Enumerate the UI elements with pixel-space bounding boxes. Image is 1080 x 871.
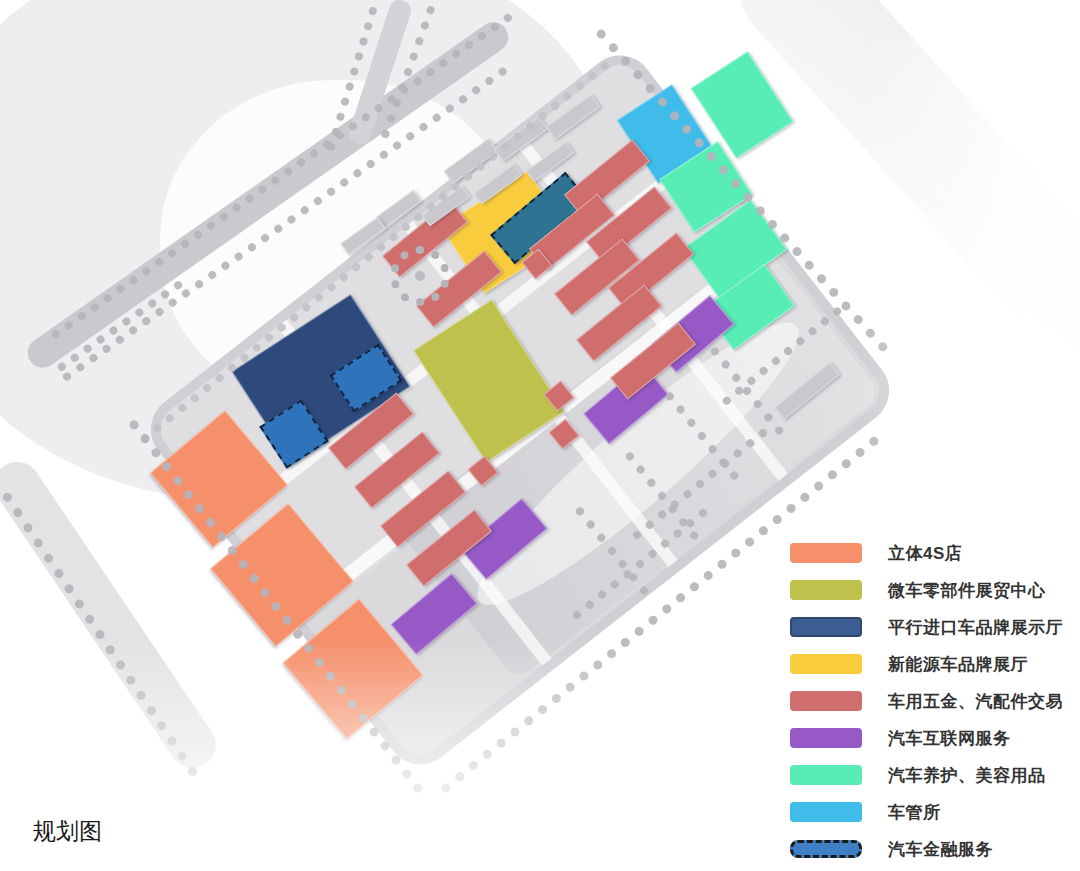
legend-swatch-vehicle-admin [790,802,862,822]
legend-item-vehicle-admin: 车管所 [790,802,1080,822]
legend-label-internet-service: 汽车互联网服务 [888,727,1011,750]
legend-swatch-solid-4s [790,543,862,563]
legend-label-micro-parts: 微车零部件展贸中心 [888,579,1046,602]
page-title: 规划图 [33,816,102,847]
legend-item-micro-parts: 微车零部件展贸中心 [790,580,1080,600]
legend-item-solid-4s: 立体4S店 [790,543,1080,563]
legend-label-solid-4s: 立体4S店 [888,542,962,565]
legend-label-hardware-parts: 车用五金、汽配件交易 [888,690,1063,713]
legend-item-parallel-import: 平行进口车品牌展示厅 [790,617,1080,637]
plaza-center [415,271,425,281]
legend-item-new-energy: 新能源车品牌展厅 [790,654,1080,674]
planning-map-page: 立体4S店微车零部件展贸中心平行进口车品牌展示厅新能源车品牌展厅车用五金、汽配件… [0,0,1080,871]
internet-service-4 [391,573,478,655]
legend-swatch-micro-parts [790,580,862,600]
legend-swatch-parallel-import [790,617,862,637]
legend-swatch-internet-service [790,728,862,748]
hardware-sq-3 [549,419,580,450]
legend-label-vehicle-admin: 车管所 [888,801,941,824]
legend-label-new-energy: 新能源车品牌展厅 [888,653,1028,676]
legend-swatch-hardware-parts [790,691,862,711]
legend-item-care-beauty: 汽车养护、美容用品 [790,765,1080,785]
legend-item-auto-finance: 汽车金融服务 [790,839,1080,859]
legend-label-care-beauty: 汽车养护、美容用品 [888,764,1046,787]
hardware-sq-4 [468,456,499,487]
service-building-9 [774,362,840,420]
legend-swatch-auto-finance [790,840,862,858]
legend-label-parallel-import: 平行进口车品牌展示厅 [888,616,1063,639]
legend-label-auto-finance: 汽车金融服务 [888,838,993,861]
legend-item-hardware-parts: 车用五金、汽配件交易 [790,691,1080,711]
legend-swatch-care-beauty [790,765,862,785]
legend-swatch-new-energy [790,654,862,674]
legend: 立体4S店微车零部件展贸中心平行进口车品牌展示厅新能源车品牌展厅车用五金、汽配件… [790,543,1080,871]
legend-item-internet-service: 汽车互联网服务 [790,728,1080,748]
